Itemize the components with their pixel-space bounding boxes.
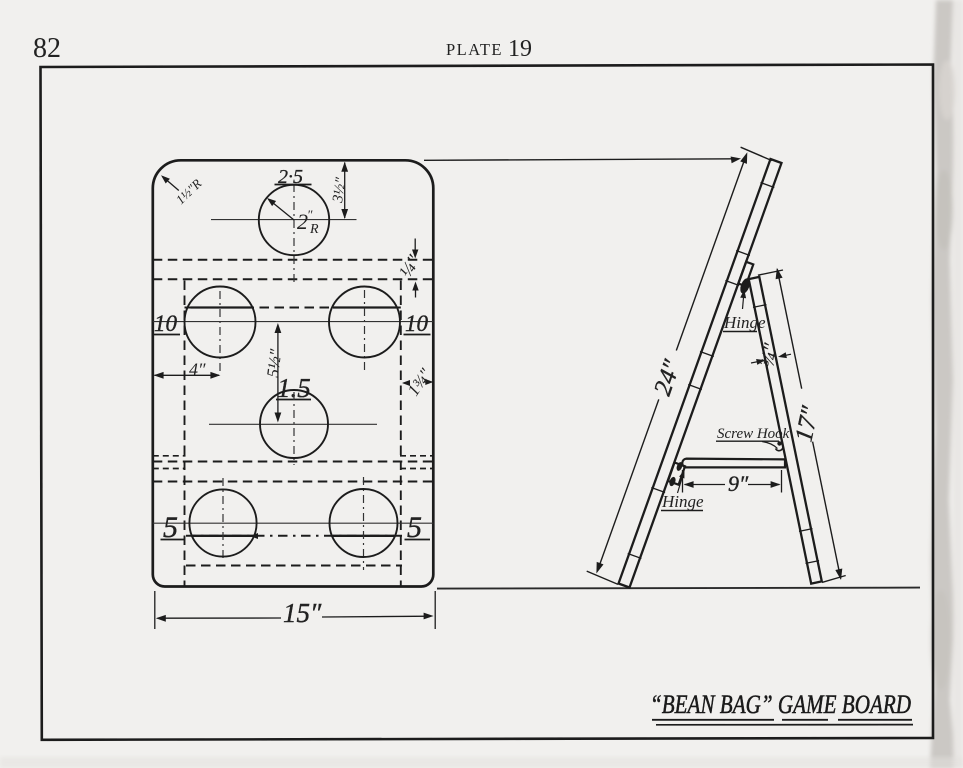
svg-text:9″: 9″: [728, 471, 749, 496]
svg-text:Hinge: Hinge: [661, 492, 704, 511]
svg-text:82: 82: [33, 33, 61, 64]
svg-text:10: 10: [405, 311, 429, 336]
svg-text:″: ″: [307, 207, 313, 222]
svg-text:Hinge: Hinge: [723, 313, 766, 332]
svg-text:“BEAN BAG” GAME BOARD: “BEAN BAG” GAME BOARD: [650, 690, 911, 719]
svg-text:PLATE: PLATE: [446, 40, 503, 59]
svg-text:4″: 4″: [189, 360, 206, 380]
svg-text:15″: 15″: [283, 598, 322, 628]
svg-text:Screw Hook: Screw Hook: [717, 426, 790, 442]
svg-text:10: 10: [154, 311, 178, 336]
svg-text:19: 19: [508, 36, 532, 62]
svg-text:R: R: [309, 222, 319, 237]
svg-text:¾″: ¾″: [754, 341, 783, 370]
